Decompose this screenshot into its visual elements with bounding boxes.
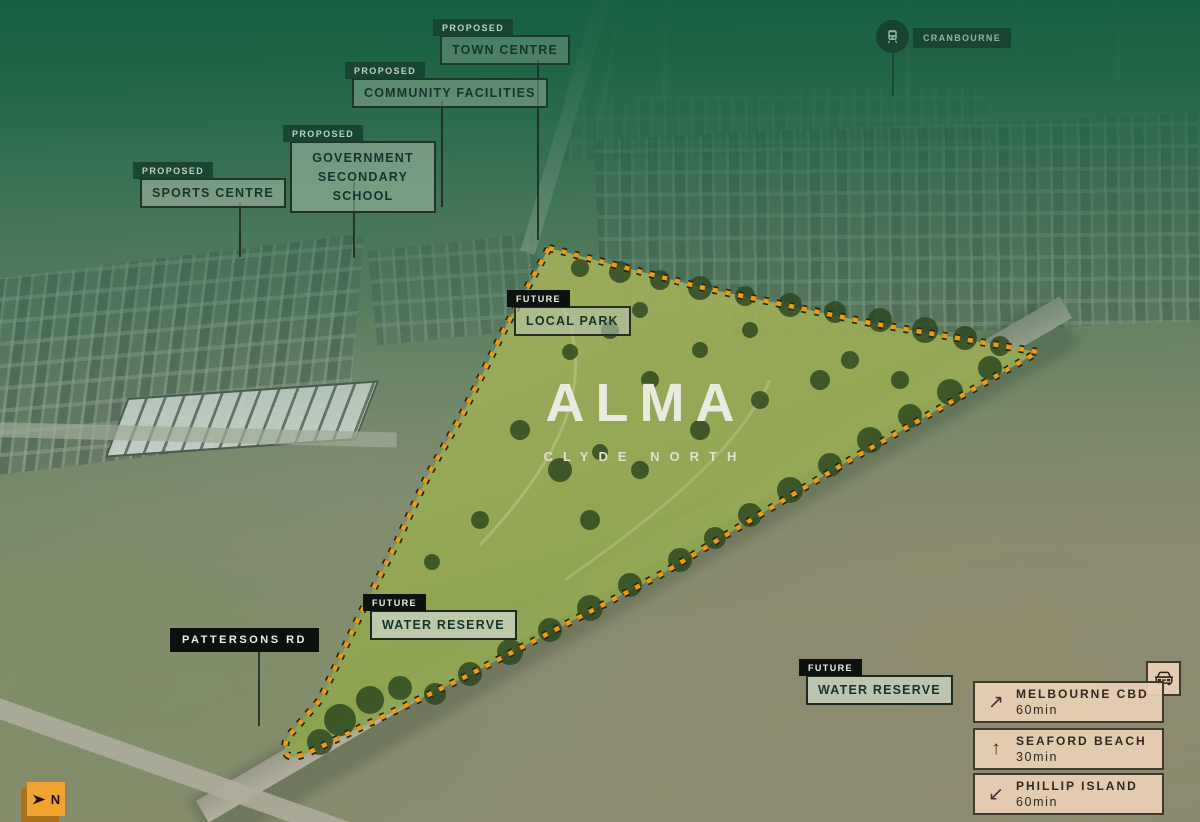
site-locality: CLYDE NORTH <box>544 449 747 464</box>
tree-clump <box>692 342 708 358</box>
callout-label: COMMUNITY FACILITIES <box>352 78 548 108</box>
tree-clump <box>891 371 909 389</box>
travel-time: 30min <box>1016 750 1147 764</box>
callout-town-centre: PROPOSED TOWN CENTRE <box>433 18 570 65</box>
cranbourne-station-marker: CRANBOURNE <box>876 20 909 53</box>
tree-clump <box>324 704 356 736</box>
tree-clump <box>510 420 530 440</box>
tree-clump <box>424 554 440 570</box>
destination-name: MELBOURNE CBD <box>1016 687 1149 701</box>
tree-clump <box>751 391 769 409</box>
future-tag: FUTURE <box>363 594 426 611</box>
travel-time-seaford-beach: ↑ SEAFORD BEACH 30min <box>973 728 1164 770</box>
callout-water-reserve-east: FUTURE WATER RESERVE <box>799 658 953 705</box>
destination-name: PHILLIP ISLAND <box>1016 779 1138 793</box>
proposed-tag: PROPOSED <box>283 125 363 142</box>
station-circle <box>876 20 909 53</box>
tree-clump <box>471 511 489 529</box>
masterplan-aerial-map: ALMA CLYDE NORTH PROPOSED TOWN CENTRE PR… <box>0 0 1200 822</box>
proposed-tag: PROPOSED <box>133 162 213 179</box>
future-tag: FUTURE <box>507 290 570 307</box>
north-arrow-icon <box>32 793 47 806</box>
callout-label: WATER RESERVE <box>806 675 953 705</box>
travel-time: 60min <box>1016 795 1138 809</box>
north-compass: N <box>27 782 65 816</box>
station-label: CRANBOURNE <box>913 28 1011 48</box>
tree-clump <box>841 351 859 369</box>
compass-label: N <box>51 792 60 807</box>
tree-clump <box>912 317 938 343</box>
callout-water-reserve-west: FUTURE WATER RESERVE <box>363 593 517 640</box>
site-title-block: ALMA CLYDE NORTH <box>544 372 737 464</box>
arrow-north-east-icon: ↗ <box>985 691 1007 714</box>
site-name: ALMA <box>544 372 748 434</box>
tree-clump <box>857 427 883 453</box>
tree-clump <box>580 510 600 530</box>
travel-time: 60min <box>1016 703 1149 717</box>
tree-clump <box>388 676 412 700</box>
callout-community-facilities: PROPOSED COMMUNITY FACILITIES <box>345 61 548 108</box>
travel-time-phillip-island: ↙ PHILLIP ISLAND 60min <box>973 773 1164 815</box>
pattersons-rd-label: PATTERSONS RD <box>170 628 319 652</box>
callout-label: LOCAL PARK <box>514 306 631 336</box>
callout-label: SPORTS CENTRE <box>140 178 286 208</box>
tree-clump <box>632 302 648 318</box>
arrow-north-icon: ↑ <box>985 738 1007 760</box>
train-icon <box>884 28 901 45</box>
tree-clump <box>810 370 830 390</box>
callout-label: WATER RESERVE <box>370 610 517 640</box>
tree-clump <box>742 322 758 338</box>
proposed-tag: PROPOSED <box>345 62 425 79</box>
proposed-tag: PROPOSED <box>433 19 513 36</box>
arrow-south-west-icon: ↙ <box>985 783 1007 806</box>
tree-clump <box>562 344 578 360</box>
callout-secondary-school: PROPOSED GOVERNMENT SECONDARY SCHOOL <box>283 124 436 213</box>
callout-sports-centre: PROPOSED SPORTS CENTRE <box>133 161 286 208</box>
tree-clump <box>356 686 384 714</box>
destination-name: SEAFORD BEACH <box>1016 734 1147 748</box>
callout-local-park: FUTURE LOCAL PARK <box>507 289 631 336</box>
travel-time-melbourne-cbd: ↗ MELBOURNE CBD 60min <box>973 681 1164 723</box>
callout-label: GOVERNMENT SECONDARY SCHOOL <box>290 141 436 213</box>
future-tag: FUTURE <box>799 659 862 676</box>
